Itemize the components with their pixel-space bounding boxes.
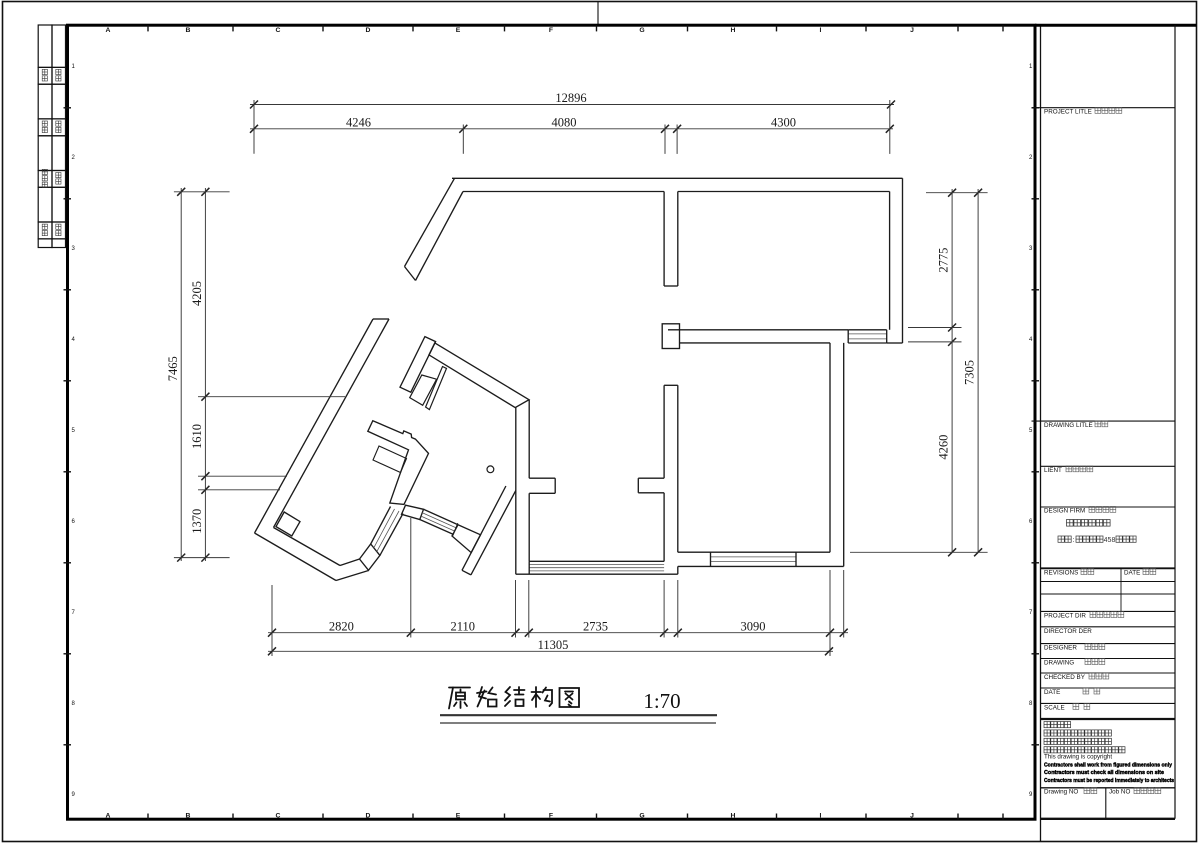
svg-text:This drawing is copyright: This drawing is copyright <box>1044 754 1112 761</box>
svg-text:7: 7 <box>1029 610 1033 616</box>
svg-text:1610: 1610 <box>190 424 204 449</box>
svg-text:J: J <box>910 813 914 820</box>
svg-text:5: 5 <box>72 428 76 434</box>
svg-text::: : <box>1073 537 1075 544</box>
svg-text:7: 7 <box>72 610 76 616</box>
svg-text:PROJECT LITLE: PROJECT LITLE <box>1044 109 1092 116</box>
svg-text:12896: 12896 <box>555 91 586 105</box>
svg-text:D: D <box>366 813 371 820</box>
svg-text:4: 4 <box>1029 337 1033 343</box>
svg-text:E: E <box>456 27 461 34</box>
svg-text:8: 8 <box>72 701 76 707</box>
svg-text:4246: 4246 <box>346 115 371 129</box>
svg-text:C: C <box>276 813 281 820</box>
svg-text:2: 2 <box>72 155 76 161</box>
svg-text:3090: 3090 <box>741 619 766 633</box>
svg-text:Drawing NO: Drawing NO <box>1044 789 1078 796</box>
svg-text:B: B <box>186 27 191 34</box>
svg-text:E: E <box>456 813 461 820</box>
svg-text:C: C <box>276 27 281 34</box>
svg-text:F: F <box>549 27 553 34</box>
svg-text:DIRECTOR DER: DIRECTOR DER <box>1044 628 1092 635</box>
svg-text:3: 3 <box>1029 246 1033 252</box>
svg-text:H: H <box>731 27 736 34</box>
svg-text:4260: 4260 <box>937 435 951 460</box>
svg-text:2735: 2735 <box>583 619 608 633</box>
svg-text:G: G <box>639 27 644 34</box>
svg-text:DATE: DATE <box>1124 570 1140 577</box>
svg-text:I: I <box>820 27 822 34</box>
svg-text:1:70: 1:70 <box>643 689 680 713</box>
svg-text:DESIGNER: DESIGNER <box>1044 645 1077 652</box>
svg-text:5: 5 <box>1029 428 1033 434</box>
svg-text:I: I <box>820 813 822 820</box>
svg-text:7305: 7305 <box>963 360 977 385</box>
svg-text:9: 9 <box>72 792 76 798</box>
svg-text:SCALE: SCALE <box>1044 705 1065 712</box>
svg-text:Contractors must check all dim: Contractors must check all dimensions on… <box>1044 770 1165 776</box>
svg-text:3: 3 <box>72 246 76 252</box>
svg-text:1370: 1370 <box>190 509 204 534</box>
svg-text:6: 6 <box>72 519 76 525</box>
svg-text:2820: 2820 <box>329 619 354 633</box>
svg-text:Job NO: Job NO <box>1109 789 1130 796</box>
svg-text:8: 8 <box>1029 701 1033 707</box>
svg-text:2775: 2775 <box>937 248 951 273</box>
svg-text:DRAWING LITLE: DRAWING LITLE <box>1044 422 1093 429</box>
svg-text:F: F <box>549 813 553 820</box>
svg-text:DATE: DATE <box>1044 689 1060 696</box>
svg-text:458: 458 <box>1104 537 1116 544</box>
svg-text:J: J <box>910 27 914 34</box>
svg-text:1: 1 <box>1029 64 1033 70</box>
svg-text:DESIGN FIRM: DESIGN FIRM <box>1044 508 1085 515</box>
svg-text:4: 4 <box>72 337 76 343</box>
svg-text:Contractors must be reported i: Contractors must be reported immediately… <box>1044 778 1174 784</box>
svg-text:Contractors shall work from fi: Contractors shall work from figured dime… <box>1044 763 1173 769</box>
svg-text:9: 9 <box>1029 792 1033 798</box>
svg-text:4205: 4205 <box>190 281 204 306</box>
svg-text:6: 6 <box>1029 519 1033 525</box>
svg-text:D: D <box>366 27 371 34</box>
svg-text:REVISIONS: REVISIONS <box>1044 570 1078 577</box>
svg-text:A: A <box>106 27 111 34</box>
svg-text:2: 2 <box>1029 155 1033 161</box>
svg-text:G: G <box>639 813 644 820</box>
svg-text:4080: 4080 <box>552 115 577 129</box>
svg-text:PROJECT DIR: PROJECT DIR <box>1044 613 1086 620</box>
svg-text:H: H <box>731 813 736 820</box>
svg-text:7465: 7465 <box>166 356 180 381</box>
svg-text:11305: 11305 <box>538 638 569 652</box>
svg-text:2110: 2110 <box>451 619 476 633</box>
svg-text:CHECKED BY: CHECKED BY <box>1044 674 1086 681</box>
svg-text:4300: 4300 <box>771 115 796 129</box>
svg-text:DRAWING: DRAWING <box>1044 660 1074 667</box>
svg-text:B: B <box>186 813 191 820</box>
svg-text:1: 1 <box>72 64 76 70</box>
svg-text:A: A <box>106 813 111 820</box>
svg-text:LIENT: LIENT <box>1044 467 1062 474</box>
